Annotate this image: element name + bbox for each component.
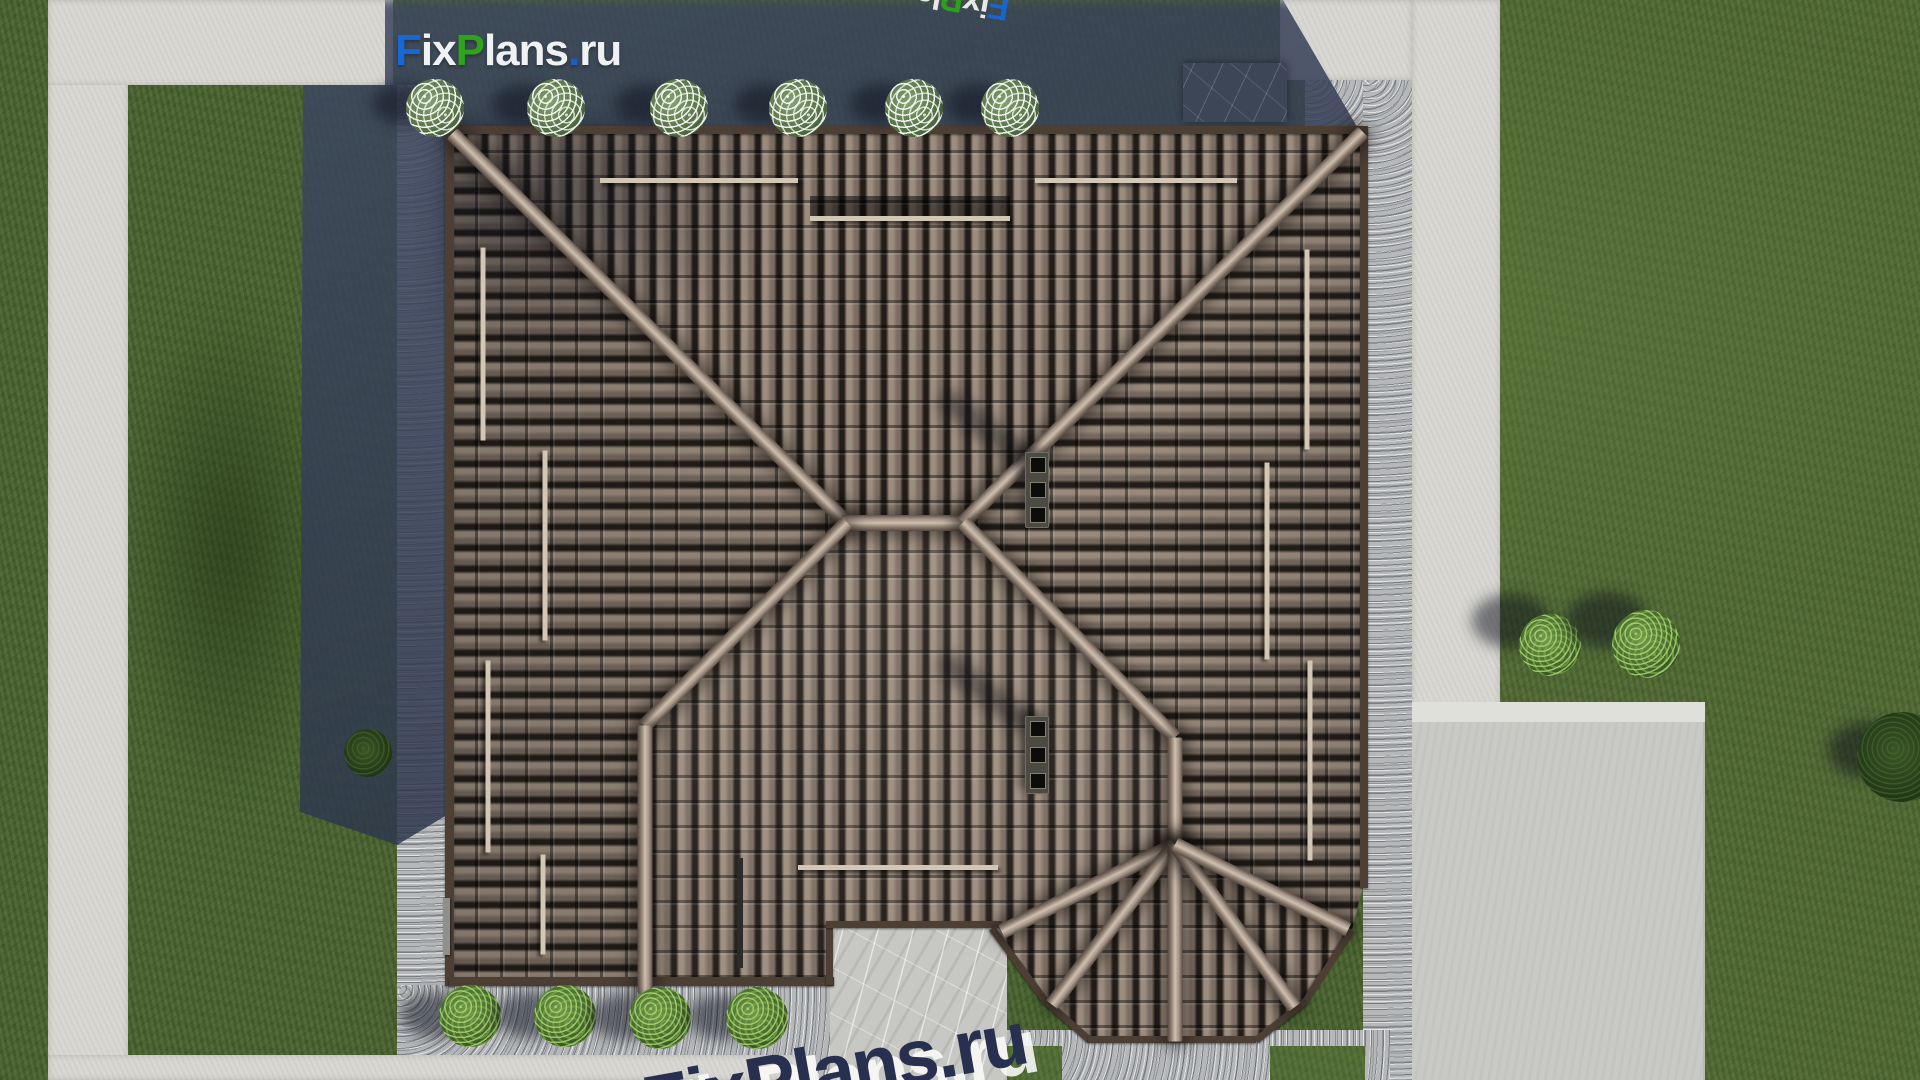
fascia-notch-vertical xyxy=(826,921,833,985)
downpipe xyxy=(443,898,450,955)
chimney-2-flue xyxy=(1030,773,1046,789)
snow-guard-top-right xyxy=(1035,178,1237,183)
ridge-bay-stem xyxy=(1168,738,1183,853)
snow-guard-west-4 xyxy=(541,855,546,955)
chimney-2-flue xyxy=(1030,747,1046,763)
fascia-right xyxy=(1360,126,1368,888)
bush-right-2 xyxy=(1612,610,1680,678)
brand-logo-segment: ix xyxy=(421,26,456,75)
chimney-2-flue xyxy=(1030,721,1046,737)
bush-top-3 xyxy=(650,79,708,137)
chimney-1 xyxy=(1025,452,1049,528)
stone-pad xyxy=(1183,63,1287,122)
vent-pipe xyxy=(737,858,743,968)
ridge-west-vertical xyxy=(638,726,653,994)
snow-guard-top-center xyxy=(810,216,1010,221)
brand-logo-segment: F xyxy=(395,26,421,75)
tree-lawn-edge xyxy=(344,729,392,777)
grass-patch-bay-right xyxy=(1270,1046,1365,1080)
path-top xyxy=(48,0,393,85)
bush-top-6 xyxy=(981,79,1039,137)
snow-guard-west-1 xyxy=(481,248,486,441)
bush-bottom-3 xyxy=(629,987,691,1049)
snow-guard-east-1 xyxy=(1305,250,1310,450)
rear-concrete-pad xyxy=(1412,702,1705,1080)
ridge-central xyxy=(841,515,971,531)
roof-nw-shadow xyxy=(440,120,780,360)
snow-guard-top-left xyxy=(600,178,798,183)
bush-bottom-1 xyxy=(439,985,501,1047)
bush-bottom-2 xyxy=(534,985,596,1047)
snow-guard-south xyxy=(798,865,998,870)
brand-logo-segment: . xyxy=(568,26,579,75)
render-canvas: FixPlans.ru FixPlans.ru FixPlans.ru xyxy=(0,0,1920,1080)
fascia-left xyxy=(445,126,454,986)
chimney-1-flue xyxy=(1030,457,1046,473)
bush-top-2 xyxy=(527,79,585,137)
snow-guard-east-2 xyxy=(1265,463,1270,660)
bush-top-4 xyxy=(769,79,827,137)
bay-fan-ridge-3 xyxy=(1168,845,1183,1042)
brand-logo-segment: ru xyxy=(579,26,621,75)
bush-top-1 xyxy=(406,79,464,137)
snow-guard-shade-band xyxy=(810,196,1010,216)
snow-guard-west-2 xyxy=(543,451,548,641)
chimney-1-flue xyxy=(1030,507,1046,523)
brand-logo-segment: P xyxy=(456,26,484,75)
snow-guard-west-3 xyxy=(486,661,491,853)
bush-top-5 xyxy=(885,79,943,137)
brand-logo-segment: lans xyxy=(484,26,568,75)
brand-logo: FixPlans.ru xyxy=(395,26,621,76)
path-left xyxy=(48,0,128,1080)
chimney-1-flue xyxy=(1030,482,1046,498)
fascia-notch-horizontal xyxy=(826,921,1002,928)
gravel-apron-right xyxy=(1363,70,1412,1080)
snow-guard-east-3 xyxy=(1308,661,1313,861)
chimney-2 xyxy=(1025,716,1049,794)
